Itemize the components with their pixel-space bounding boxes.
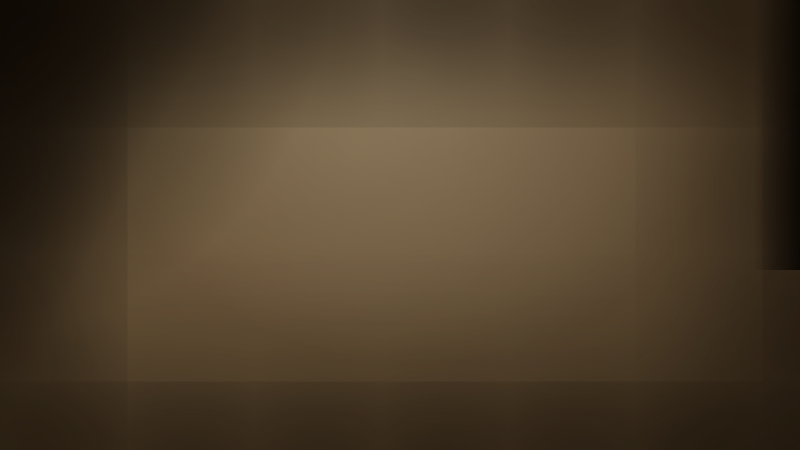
map-artwork-layer [0,0,800,450]
map-photo [0,0,800,450]
